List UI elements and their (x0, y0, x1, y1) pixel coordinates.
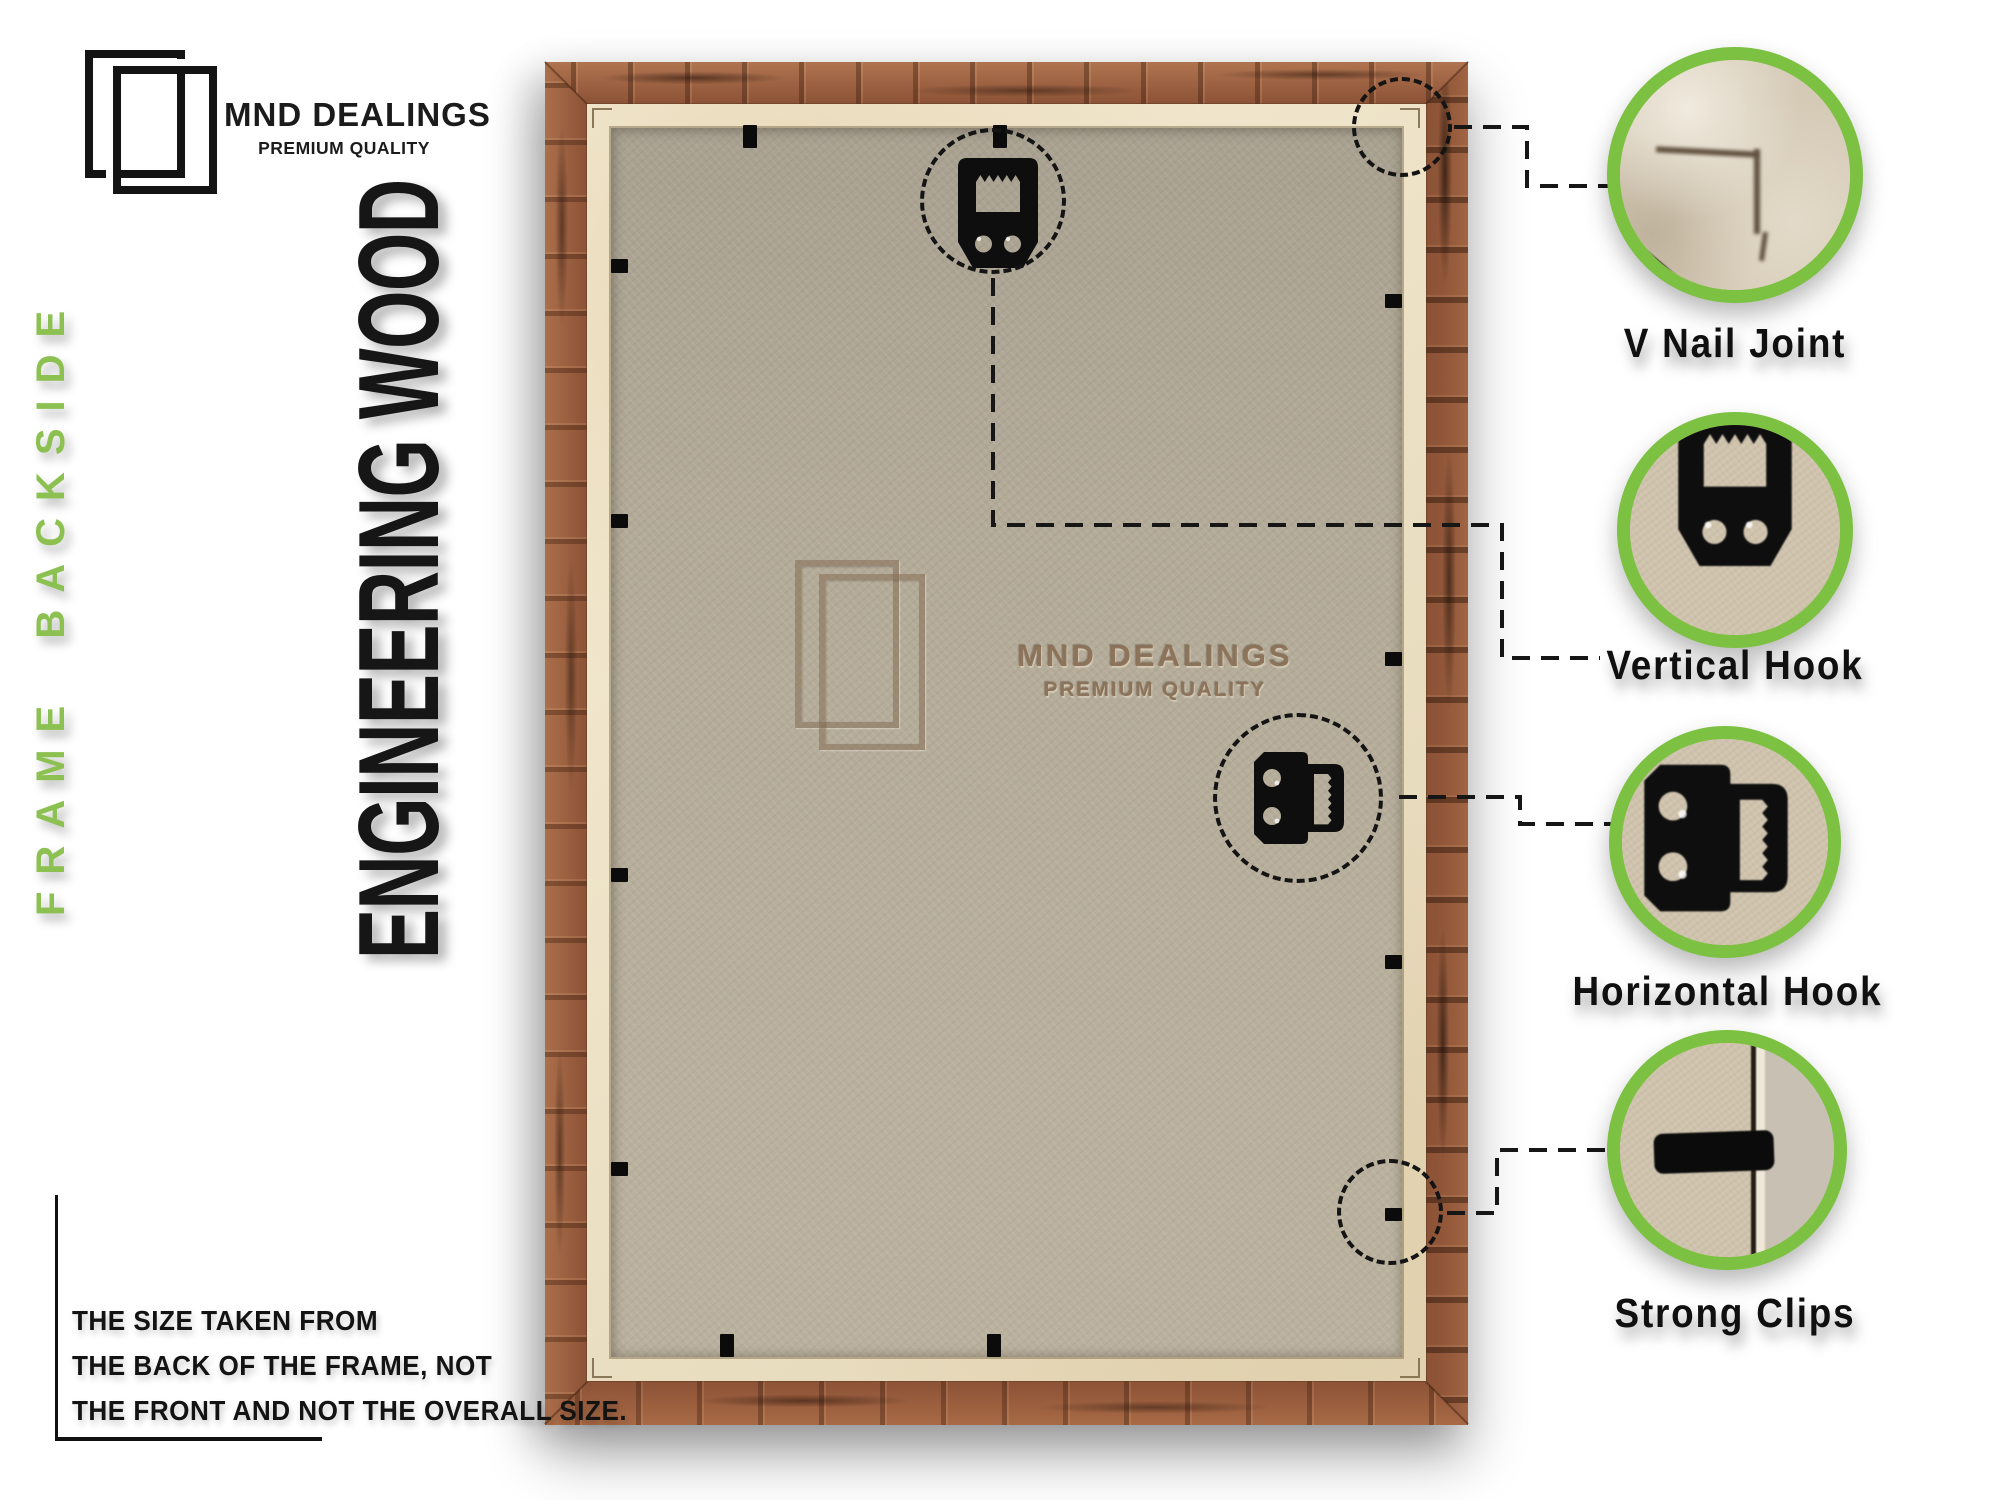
retaining-clip (1385, 652, 1402, 666)
horizontal-hook-photo (1618, 735, 1832, 949)
leader-strong-clips (1447, 1150, 1614, 1213)
vertical-hook-highlight-circle (920, 128, 1066, 274)
size-note-line: THE BACK OF THE FRAME, NOT (72, 1350, 604, 1382)
watermark-frames-icon (819, 574, 925, 750)
v-nail-joint-highlight-circle (1352, 77, 1452, 177)
horizontal-hook-label: Horizontal Hook (1572, 968, 1883, 1015)
retaining-clip (611, 868, 628, 882)
watermark-tagline: PREMIUM QUALITY (945, 678, 1365, 702)
frame-back-photo: MND DEALINGS PREMIUM QUALITY (545, 62, 1468, 1425)
retaining-clip (720, 1334, 734, 1357)
vertical-hook-photo (1626, 421, 1844, 639)
retaining-clip (611, 1162, 628, 1176)
horizontal-hook-callout (1609, 726, 1841, 958)
strong-clip-highlight-circle (1337, 1159, 1443, 1265)
brand-frames-logo-icon (85, 48, 235, 196)
size-note: THE SIZE TAKEN FROM THE BACK OF THE FRAM… (72, 1305, 632, 1440)
leader-v-nail (1454, 127, 1614, 186)
strong-clips-photo (1616, 1039, 1838, 1261)
retaining-clip (1385, 294, 1402, 308)
horizontal-hook-image (1641, 761, 1791, 914)
retaining-clip (611, 514, 628, 528)
size-note-line: THE FRONT AND NOT THE OVERALL SIZE. (72, 1395, 604, 1427)
v-nail-joint-label: V Nail Joint (1600, 320, 1870, 367)
corner-mark (592, 108, 612, 128)
retaining-clip (987, 1334, 1001, 1357)
strong-clips-label: Strong Clips (1600, 1290, 1870, 1337)
size-note-line: THE SIZE TAKEN FROM (72, 1305, 604, 1337)
engineering-wood-label: ENGINEERING WOOD (334, 187, 446, 959)
brand-tagline: PREMIUM QUALITY (224, 138, 464, 159)
watermark-name: MND DEALINGS (945, 638, 1365, 674)
logo-front-frame (113, 66, 217, 194)
frame-wood-bottom (545, 1381, 1468, 1425)
frame-wood-left (545, 62, 587, 1425)
frame-backside-infographic: MND DEALINGS PREMIUM QUALITY ENGINEERING… (0, 0, 2000, 1500)
brand-name: MND DEALINGS (224, 96, 474, 134)
vertical-hook-callout (1617, 412, 1853, 648)
frame-wood-top (545, 62, 1468, 104)
vertical-hook-label: Vertical Hook (1591, 642, 1879, 689)
v-nail-joint-photo (1616, 56, 1854, 294)
note-bracket-line (55, 1195, 58, 1440)
retaining-clip (611, 259, 628, 273)
vertical-hook-image (1674, 421, 1796, 569)
frame-backside-label: FRAME BACKSIDE (29, 316, 75, 916)
corner-mark (1400, 1358, 1420, 1378)
retaining-clip (1385, 955, 1402, 969)
retaining-clip (743, 125, 757, 148)
horizontal-hook-highlight-circle (1213, 713, 1383, 883)
v-nail-joint-callout (1607, 47, 1863, 303)
strong-clips-callout (1607, 1030, 1847, 1270)
